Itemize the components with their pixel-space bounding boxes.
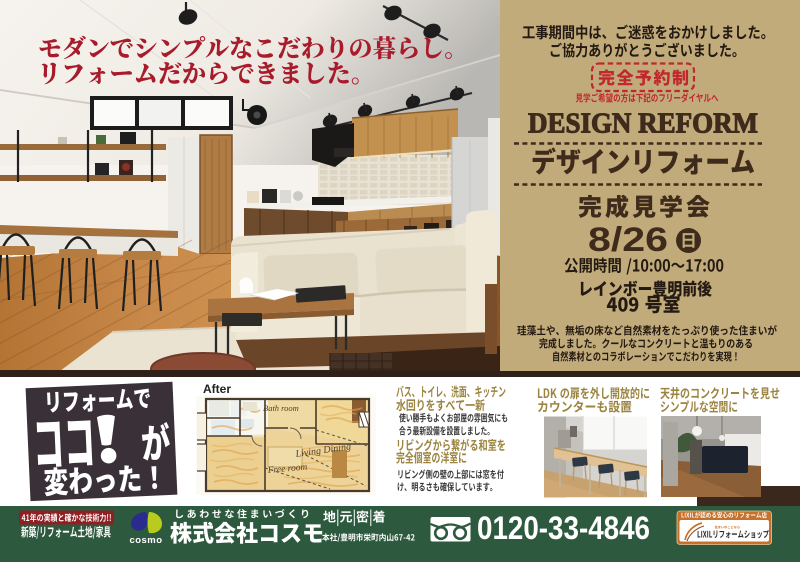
- svg-text:Bath room: Bath room: [263, 403, 299, 413]
- svg-text:8/26: 8/26: [588, 221, 668, 259]
- svg-text:0120-33-4846: 0120-33-4846: [477, 510, 650, 546]
- svg-text:DESIGN REFORM: DESIGN REFORM: [528, 108, 758, 140]
- svg-text:cosmo: cosmo: [129, 535, 162, 546]
- svg-text:After: After: [203, 382, 231, 396]
